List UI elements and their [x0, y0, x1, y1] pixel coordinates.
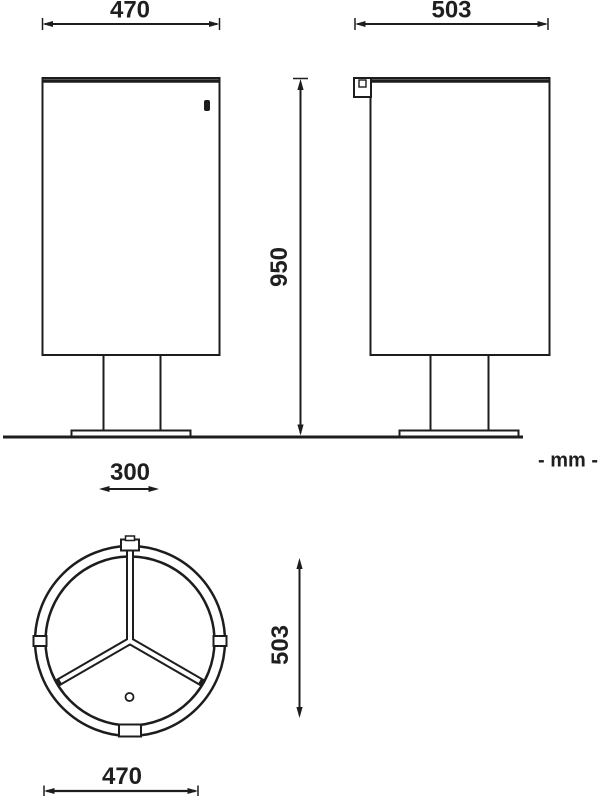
dim-base-width: 300: [99, 459, 159, 492]
top-view-drain-hole: [126, 693, 134, 701]
dim-side-depth: 503: [355, 0, 548, 30]
arrowhead-left-icon: [355, 21, 366, 27]
dim-front-width-label: 470: [110, 0, 150, 24]
dim-overall-height: 950: [266, 79, 308, 436]
arrowhead-up-icon: [297, 79, 303, 90]
front-view: [43, 78, 220, 437]
dim-top-depth: 503: [267, 558, 303, 718]
top-view-spokes: [56, 543, 204, 684]
top-view-hinge-tab-bump: [126, 536, 135, 541]
top-view-connector-left: [34, 636, 47, 646]
dim-side-depth-label: 503: [431, 0, 471, 24]
dim-top-depth-label: 503: [267, 625, 294, 665]
arrowhead-right-icon: [188, 788, 199, 794]
arrowhead-left-icon: [44, 788, 55, 794]
arrowhead-right-icon: [149, 486, 160, 492]
arrowhead-right-icon: [538, 21, 549, 27]
dim-top-width: 470: [44, 763, 198, 796]
dim-height-label: 950: [266, 247, 293, 287]
dim-top-width-label: 470: [102, 763, 142, 790]
unit-label: - mm -: [538, 450, 598, 472]
side-view: [354, 78, 550, 437]
top-view-connector-right: [214, 636, 227, 646]
arrowhead-down-icon: [296, 707, 302, 718]
top-view: [34, 536, 227, 737]
arrowhead-left-icon: [99, 486, 110, 492]
lock-detail: [204, 100, 210, 111]
arrowhead-down-icon: [297, 425, 303, 436]
arrowhead-left-icon: [43, 21, 54, 27]
dim-front-width: 470: [43, 0, 220, 30]
front-body-outline: [43, 78, 220, 355]
arrowhead-right-icon: [209, 21, 220, 27]
dimension-drawing: 470 503 950 300 - mm -: [0, 0, 603, 800]
arrowhead-up-icon: [296, 558, 302, 569]
side-body-outline: [371, 78, 550, 355]
top-view-connector-bottom: [119, 725, 141, 737]
dim-base-width-label: 300: [110, 459, 150, 486]
